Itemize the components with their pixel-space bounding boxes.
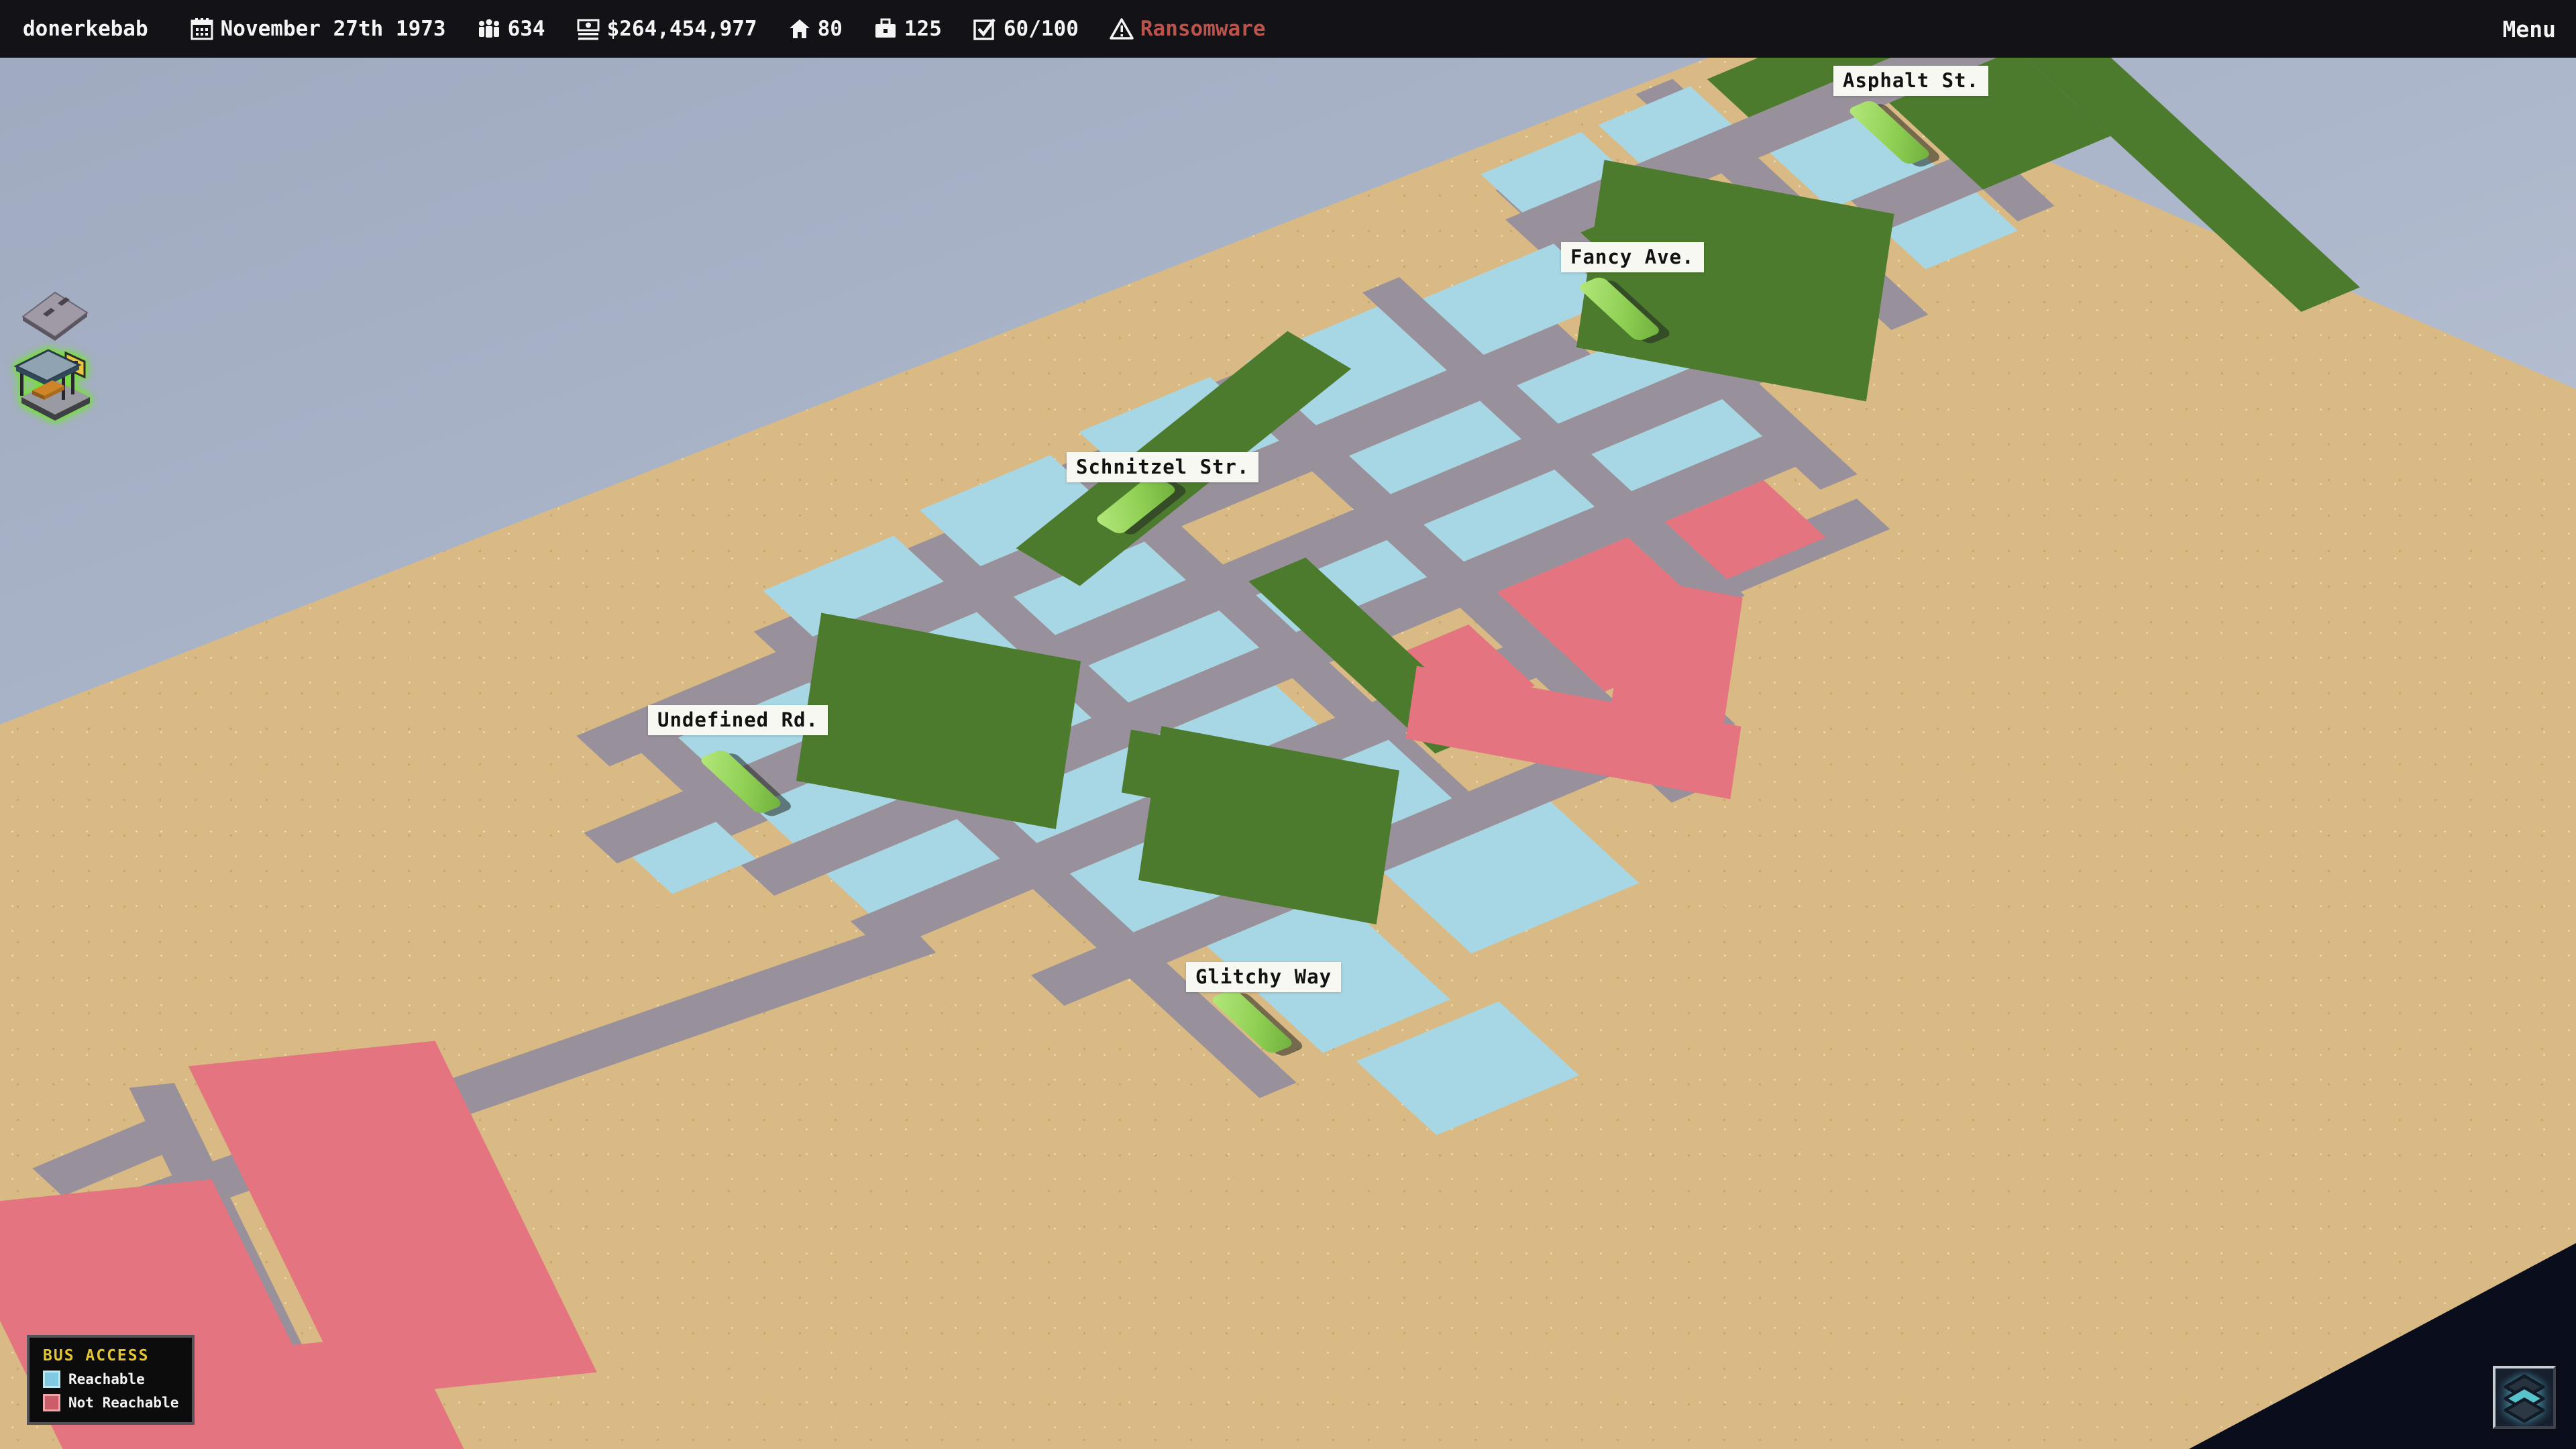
warning-icon <box>1110 17 1134 40</box>
alert-value: Ransomware <box>1140 17 1266 41</box>
road-tile-icon <box>17 287 93 341</box>
money-stat: $264,454,977 <box>576 17 757 41</box>
not-reachable-label: Not Reachable <box>68 1395 178 1411</box>
houses-value: 80 <box>818 17 843 41</box>
population-stat: 634 <box>477 17 545 41</box>
alert-stat: Ransomware <box>1110 17 1266 41</box>
overlay-layers-button[interactable] <box>2493 1366 2556 1429</box>
reachable-swatch <box>43 1371 60 1388</box>
money-icon <box>576 17 600 41</box>
game-screen: Asphalt St.Fancy Ave.Schnitzel Str.Undef… <box>0 0 2576 1449</box>
menu-button[interactable]: Menu <box>2503 0 2556 58</box>
houses-stat: 80 <box>788 17 843 41</box>
date-value: November 27th 1973 <box>221 17 446 41</box>
population-value: 634 <box>508 17 545 41</box>
approval-value: 60/100 <box>1004 17 1079 41</box>
street-label: Glitchy Way <box>1186 962 1341 992</box>
bus-stop-icon <box>12 335 97 424</box>
not-reachable-swatch <box>43 1394 60 1411</box>
bus-access-legend: BUS ACCESS Reachable Not Reachable <box>27 1335 195 1425</box>
legend-title: BUS ACCESS <box>43 1347 178 1364</box>
city-block-not-reachable <box>1607 576 1743 751</box>
layers-icon <box>2495 1368 2553 1426</box>
legend-row-reachable: Reachable <box>43 1371 178 1388</box>
street-label: Undefined Rd. <box>648 705 828 735</box>
people-icon <box>477 17 501 40</box>
jobs-value: 125 <box>904 17 942 41</box>
money-value: $264,454,977 <box>607 17 757 41</box>
player-name: donerkebab <box>23 17 148 41</box>
top-bar: donerkebab November 27th 1973 634 <box>0 0 2576 58</box>
jobs-stat: 125 <box>873 17 942 41</box>
calendar-icon <box>190 17 214 41</box>
approval-stat: 60/100 <box>973 17 1079 41</box>
reachable-label: Reachable <box>68 1371 145 1387</box>
legend-row-not-reachable: Not Reachable <box>43 1394 178 1411</box>
street-label: Schnitzel Str. <box>1067 452 1258 482</box>
briefcase-icon <box>873 17 898 40</box>
checkbox-icon <box>973 17 997 41</box>
home-icon <box>788 17 811 40</box>
street-label: Asphalt St. <box>1833 66 1988 96</box>
bus-stop-tool-sprite[interactable] <box>12 335 97 427</box>
street-label: Fancy Ave. <box>1561 242 1704 272</box>
date-stat: November 27th 1973 <box>190 17 446 41</box>
